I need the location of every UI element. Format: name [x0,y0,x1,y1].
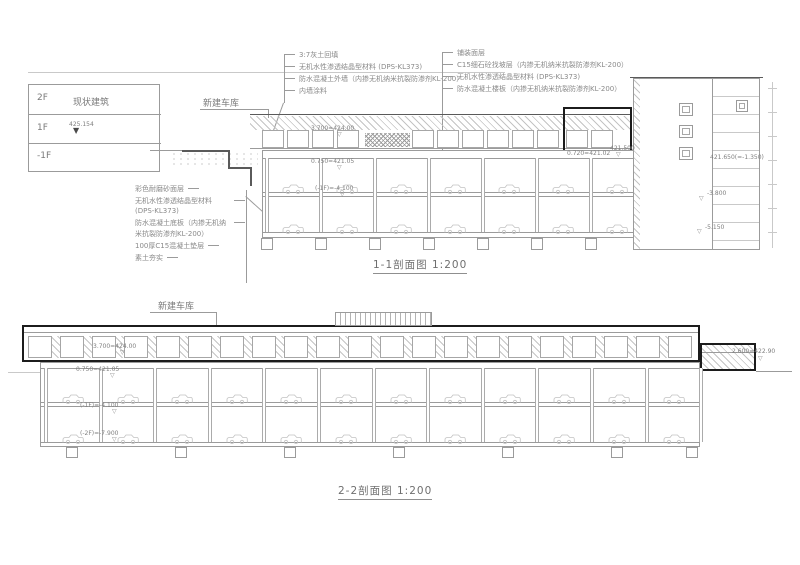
roof-hatch-pier [276,336,284,358]
roof-hatch-pier [308,336,316,358]
car-symbol [117,389,139,400]
roof-hatch-pier [596,336,604,358]
elev-roof-s2: 3.700=424.00 [93,343,136,350]
car-symbol [171,429,193,440]
roof-hatch-pier [436,336,444,358]
skylight-block [335,312,432,326]
roof-hatch-pier [180,336,188,358]
elevation-marker-icon: ▽ [758,356,763,362]
column [153,368,157,442]
foundation-pier [686,447,698,458]
car-symbol [663,389,685,400]
roof-panel [220,336,244,358]
column [481,368,485,442]
car-symbol [335,389,357,400]
column [372,368,376,442]
car-symbol [553,429,575,440]
foundation-pier [393,447,405,458]
roof-panel [476,336,500,358]
column [317,368,321,442]
roof-hatch-pier [372,336,380,358]
roof-panel [252,336,276,358]
car-symbol [499,389,521,400]
column [535,368,539,442]
foundation-pier [502,447,514,458]
foundation-pier [175,447,187,458]
section-2-drawing [0,0,800,565]
roof-hatch-pier [148,336,156,358]
roof-panel [60,336,84,358]
car-symbol [335,429,357,440]
roof-slab-line [24,332,698,333]
roof-hatch-pier [660,336,668,358]
slab-line [40,402,700,403]
car-symbol [608,429,630,440]
roof-panel [572,336,596,358]
car-symbol [171,389,193,400]
car-symbol [444,429,466,440]
roof-panel [316,336,340,358]
car-symbol [280,429,302,440]
roof-panel [348,336,372,358]
column [590,368,594,442]
car-symbol [280,389,302,400]
elevation-marker-icon: ▽ [112,437,117,443]
car-symbol [663,429,685,440]
car-symbol [444,389,466,400]
ground-line-left [8,372,40,373]
car-symbol [226,389,248,400]
roof-hatch-pier [84,336,92,358]
car-symbol [226,429,248,440]
roof-panel [604,336,628,358]
elevation-marker-icon: ▽ [112,409,117,415]
roof-panel [668,336,692,358]
roof-hatch-pier [532,336,540,358]
roof-hatch-pier [500,336,508,358]
car-symbol [117,429,139,440]
elevation-marker-icon: ▽ [110,373,115,379]
car-symbol [553,389,575,400]
roof-panel [412,336,436,358]
column [645,368,649,442]
roof-panel [508,336,532,358]
garage-outline [40,362,700,447]
foundation-pier [284,447,296,458]
roof-hatch-pier [628,336,636,358]
car-symbol [499,429,521,440]
roof-hatch-pier [52,336,60,358]
roof-hatch-pier [340,336,348,358]
column [44,368,48,442]
foundation-pier [611,447,623,458]
roof-panel [188,336,212,358]
car-symbol [390,389,412,400]
roof-panel [380,336,404,358]
roof-panel [284,336,308,358]
roof-panel [28,336,52,358]
roof-hatch-pier [212,336,220,358]
slab-line [40,368,700,369]
column [208,368,212,442]
roof-hatch-pier [564,336,572,358]
column [699,368,703,442]
base-slab-line [40,442,700,443]
elevation-marker-icon: ▽ [120,350,125,356]
roof-panel [444,336,468,358]
roof-hatch-pier [244,336,252,358]
slab-line [40,406,700,407]
roof-hatch-pier [404,336,412,358]
section-2-title: 2-2剖面图 1:200 [338,483,432,500]
ground-line-right [756,371,792,372]
car-symbol [390,429,412,440]
car-symbol [608,389,630,400]
roof-panel [636,336,660,358]
roof-panel [540,336,564,358]
cad-section-drawing: 2F 现状建筑 1F 425.154 ▼ -1F 3:7灰土回填无机水性渗透结晶… [0,0,800,565]
foundation-pier [66,447,78,458]
roof-hatch-pier [468,336,476,358]
car-symbol [62,389,84,400]
column [426,368,430,442]
elev-right-s2: 2.600=422.90 [732,348,775,355]
roof-panel [156,336,180,358]
column [262,368,266,442]
